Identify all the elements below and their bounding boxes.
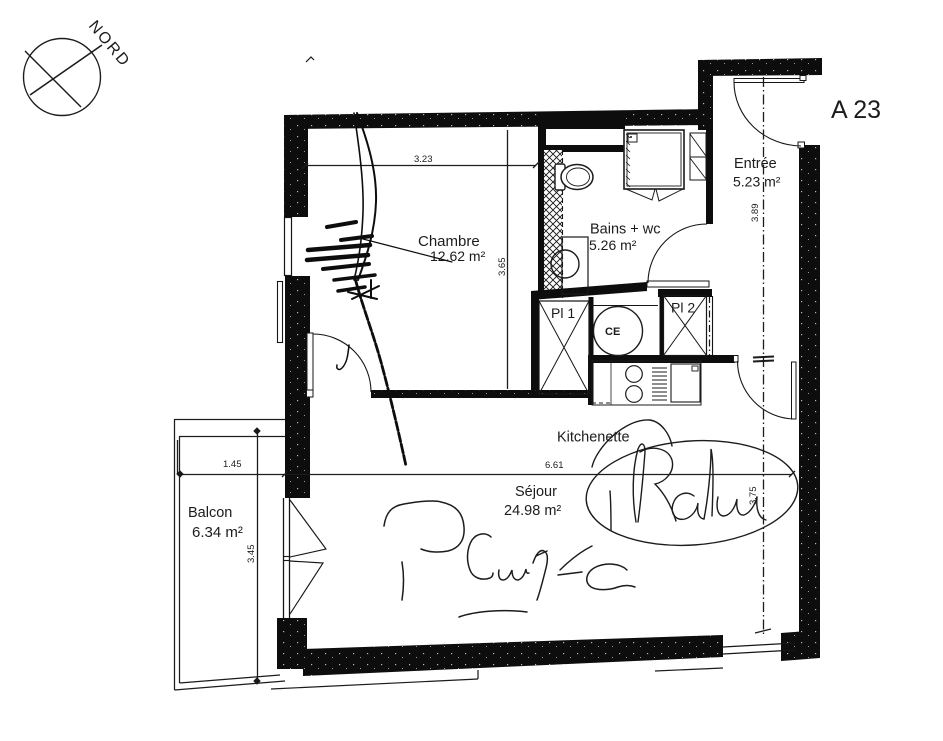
svg-text:6.61: 6.61 [545,460,564,471]
svg-text:Pl 2: Pl 2 [671,300,695,316]
svg-text:5.26 m²: 5.26 m² [589,237,637,253]
svg-text:A 23: A 23 [831,96,881,124]
svg-text:Balcon: Balcon [188,505,232,521]
svg-text:3.65: 3.65 [497,258,508,277]
svg-text:Séjour: Séjour [515,484,557,500]
svg-text:5.23 m²: 5.23 m² [733,174,781,190]
svg-text:Bains + wc: Bains + wc [590,222,661,238]
svg-text:1.45: 1.45 [223,459,242,470]
svg-text:Entrée: Entrée [734,156,777,172]
svg-text:3.23: 3.23 [414,154,433,165]
svg-text:Pl 1: Pl 1 [551,305,575,321]
svg-text:6.34 m²: 6.34 m² [192,524,243,541]
svg-text:24.98 m²: 24.98 m² [504,503,561,519]
svg-text:12.62 m²: 12.62 m² [430,248,486,264]
svg-text:3.45: 3.45 [246,545,257,564]
svg-text:CE: CE [605,326,620,338]
svg-text:3.89: 3.89 [750,204,761,223]
